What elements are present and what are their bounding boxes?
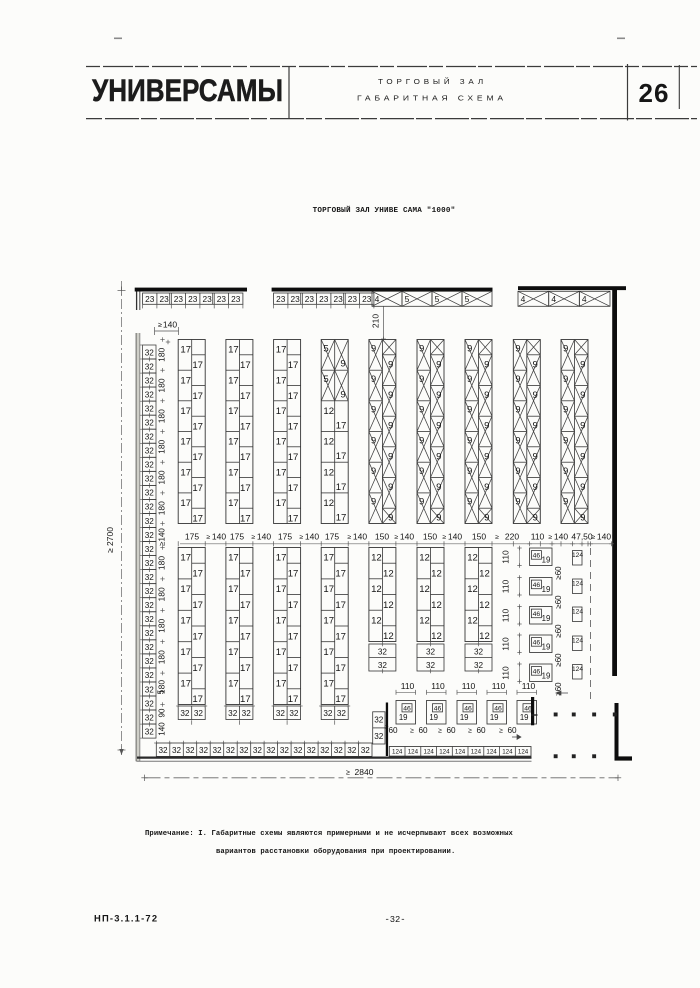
svg-text:17: 17	[228, 467, 239, 478]
svg-text:19: 19	[460, 713, 469, 722]
svg-text:17: 17	[228, 616, 239, 627]
svg-text:46: 46	[533, 582, 541, 589]
svg-text:9: 9	[484, 482, 489, 493]
svg-text:124: 124	[455, 749, 466, 756]
svg-text:9: 9	[484, 390, 489, 401]
svg-text:17: 17	[240, 452, 251, 463]
svg-text:17: 17	[240, 422, 251, 433]
svg-text:9: 9	[340, 389, 345, 400]
svg-text:46: 46	[464, 706, 472, 713]
svg-text:9: 9	[484, 421, 489, 432]
svg-text:32: 32	[253, 746, 263, 755]
svg-text:32: 32	[361, 746, 371, 755]
svg-text:23: 23	[145, 294, 155, 304]
svg-text:32: 32	[185, 746, 195, 755]
svg-text:9: 9	[515, 405, 520, 416]
svg-text:32: 32	[242, 709, 252, 718]
svg-text:17: 17	[276, 647, 287, 658]
svg-text:124: 124	[392, 749, 403, 756]
svg-text:140: 140	[400, 532, 414, 542]
svg-text:12: 12	[371, 584, 382, 595]
svg-text:32: 32	[212, 746, 222, 755]
svg-text:17: 17	[180, 437, 191, 448]
svg-text:9: 9	[515, 343, 520, 354]
svg-text:9: 9	[563, 466, 568, 477]
svg-text:19: 19	[542, 672, 551, 681]
svg-text:17: 17	[335, 569, 346, 580]
svg-text:9: 9	[580, 451, 585, 462]
svg-text:9: 9	[580, 390, 585, 401]
svg-text:17: 17	[240, 569, 251, 580]
svg-text:9: 9	[484, 451, 489, 462]
svg-text:9: 9	[419, 374, 424, 385]
svg-text:32: 32	[276, 709, 286, 718]
svg-text:17: 17	[288, 360, 299, 371]
svg-text:17: 17	[288, 600, 299, 611]
svg-text:175: 175	[185, 532, 199, 542]
svg-text:17: 17	[228, 553, 239, 564]
svg-text:23: 23	[348, 294, 358, 304]
svg-text:9: 9	[532, 482, 537, 493]
svg-text:110: 110	[501, 666, 511, 680]
svg-text:32: 32	[374, 716, 384, 725]
svg-text:17: 17	[323, 616, 334, 627]
svg-text:9: 9	[532, 421, 537, 432]
svg-text:9: 9	[563, 497, 568, 508]
svg-text:90: 90	[158, 708, 167, 717]
svg-text:12: 12	[419, 553, 430, 564]
svg-text:9: 9	[532, 513, 537, 524]
svg-text:17: 17	[288, 663, 299, 674]
svg-text:9: 9	[467, 405, 472, 416]
svg-text:140: 140	[163, 320, 177, 330]
svg-text:110: 110	[501, 637, 511, 651]
svg-text:9: 9	[580, 513, 585, 524]
svg-text:9: 9	[419, 343, 424, 354]
svg-text:60: 60	[418, 726, 428, 735]
svg-text:5: 5	[465, 294, 470, 304]
svg-text:124: 124	[424, 749, 435, 756]
svg-text:32: 32	[280, 746, 290, 755]
svg-text:17: 17	[240, 631, 251, 642]
svg-text:17: 17	[228, 406, 239, 417]
svg-text:32: 32	[158, 746, 168, 755]
svg-text:17: 17	[276, 375, 287, 386]
svg-text:124: 124	[518, 749, 529, 756]
svg-text:17: 17	[180, 498, 191, 509]
svg-text:32: 32	[426, 648, 436, 657]
svg-text:9: 9	[371, 343, 376, 354]
svg-text:17: 17	[192, 663, 203, 674]
svg-text:17: 17	[192, 694, 203, 705]
svg-text:17: 17	[228, 678, 239, 689]
svg-text:17: 17	[276, 553, 287, 564]
svg-text:9: 9	[340, 359, 345, 370]
svg-text:17: 17	[180, 616, 191, 627]
svg-text:32: 32	[145, 475, 155, 484]
svg-text:17: 17	[276, 345, 287, 356]
svg-text:17: 17	[240, 600, 251, 611]
svg-text:46: 46	[434, 706, 442, 713]
svg-text:110: 110	[492, 681, 506, 691]
svg-text:32: 32	[145, 419, 155, 428]
svg-text:9: 9	[467, 374, 472, 385]
svg-text:23: 23	[188, 294, 198, 304]
svg-text:210: 210	[371, 314, 381, 328]
svg-text:32: 32	[228, 709, 238, 718]
svg-text:9: 9	[388, 482, 393, 493]
svg-text:17: 17	[288, 514, 299, 525]
svg-text:32: 32	[320, 746, 330, 755]
svg-text:9: 9	[484, 513, 489, 524]
svg-text:32: 32	[266, 746, 276, 755]
svg-text:32: 32	[474, 648, 484, 657]
svg-text:180: 180	[157, 501, 167, 515]
svg-text:17: 17	[288, 569, 299, 580]
svg-text:9: 9	[436, 513, 441, 524]
svg-text:32: 32	[474, 661, 484, 670]
svg-text:32: 32	[334, 746, 344, 755]
svg-text:19: 19	[399, 713, 408, 722]
svg-text:17: 17	[180, 406, 191, 417]
svg-text:17: 17	[335, 600, 346, 611]
svg-text:110: 110	[501, 550, 511, 564]
svg-text:32: 32	[347, 746, 357, 755]
svg-text:≥ 2700: ≥ 2700	[105, 527, 115, 553]
svg-text:124: 124	[572, 637, 583, 644]
svg-text:32: 32	[145, 643, 155, 652]
svg-text:17: 17	[228, 375, 239, 386]
svg-text:≥140: ≥140	[158, 528, 167, 546]
svg-text:≥: ≥	[346, 770, 350, 777]
svg-text:150: 150	[472, 532, 486, 542]
svg-text:175: 175	[325, 532, 339, 542]
svg-text:17: 17	[288, 631, 299, 642]
svg-text:9: 9	[388, 451, 393, 462]
svg-text:9: 9	[436, 390, 441, 401]
svg-text:220: 220	[505, 532, 519, 542]
svg-text:≥: ≥	[299, 534, 303, 541]
svg-text:9: 9	[371, 466, 376, 477]
svg-text:110: 110	[401, 681, 415, 691]
svg-text:≥60: ≥60	[554, 566, 563, 580]
svg-text:9: 9	[419, 497, 424, 508]
svg-text:17: 17	[288, 452, 299, 463]
svg-text:23: 23	[362, 294, 372, 304]
svg-text:32: 32	[145, 489, 155, 498]
svg-text:4: 4	[375, 294, 380, 304]
svg-text:9: 9	[580, 359, 585, 370]
svg-text:≥: ≥	[206, 534, 210, 541]
svg-text:32: 32	[145, 517, 155, 526]
svg-text:60: 60	[507, 726, 517, 735]
svg-text:110: 110	[431, 681, 445, 691]
svg-text:12: 12	[479, 631, 490, 642]
svg-text:17: 17	[276, 678, 287, 689]
svg-text:140: 140	[158, 722, 167, 736]
svg-text:≥: ≥	[347, 534, 351, 541]
svg-text:32: 32	[145, 376, 155, 385]
svg-text:2840: 2840	[355, 767, 374, 777]
svg-text:124: 124	[502, 749, 513, 756]
svg-text:9: 9	[563, 343, 568, 354]
svg-text:17: 17	[180, 553, 191, 564]
svg-text:-32-: -32-	[384, 915, 405, 925]
svg-text:32: 32	[145, 503, 155, 512]
svg-text:23: 23	[174, 294, 184, 304]
svg-text:9: 9	[436, 482, 441, 493]
svg-text:23: 23	[159, 294, 169, 304]
svg-text:32: 32	[145, 615, 155, 624]
svg-text:110: 110	[522, 681, 536, 691]
svg-text:23: 23	[290, 294, 300, 304]
svg-text:УНИВЕРСАМЫ: УНИВЕРСАМЫ	[92, 72, 283, 108]
svg-text:9: 9	[419, 466, 424, 477]
svg-text:23: 23	[319, 294, 329, 304]
svg-text:≥60: ≥60	[554, 595, 563, 609]
svg-text:5: 5	[323, 343, 328, 354]
svg-text:17: 17	[276, 406, 287, 417]
svg-text:9: 9	[563, 405, 568, 416]
svg-text:4: 4	[521, 294, 526, 304]
svg-text:140: 140	[212, 532, 226, 542]
svg-text:32: 32	[145, 531, 155, 540]
svg-text:9: 9	[388, 421, 393, 432]
svg-text:32: 32	[145, 727, 155, 736]
svg-text:9: 9	[419, 405, 424, 416]
svg-text:17: 17	[228, 647, 239, 658]
svg-text:110: 110	[501, 608, 511, 622]
svg-text:32: 32	[145, 545, 155, 554]
svg-text:32: 32	[145, 671, 155, 680]
svg-text:124: 124	[572, 666, 583, 673]
svg-text:17: 17	[240, 391, 251, 402]
svg-text:9: 9	[436, 451, 441, 462]
svg-text:180: 180	[157, 439, 167, 453]
svg-text:17: 17	[228, 498, 239, 509]
svg-text:≥: ≥	[499, 727, 503, 734]
svg-text:17: 17	[240, 360, 251, 371]
svg-text:17: 17	[335, 631, 346, 642]
svg-text:12: 12	[383, 600, 394, 611]
svg-text:17: 17	[192, 391, 203, 402]
svg-text:32: 32	[145, 405, 155, 414]
svg-text:32: 32	[199, 746, 209, 755]
svg-text:32: 32	[145, 362, 155, 371]
svg-text:17: 17	[240, 663, 251, 674]
svg-text:19: 19	[429, 713, 438, 722]
svg-text:17: 17	[180, 584, 191, 595]
svg-text:5: 5	[405, 294, 410, 304]
svg-text:17: 17	[240, 483, 251, 494]
svg-text:9: 9	[580, 421, 585, 432]
svg-text:12: 12	[467, 615, 478, 626]
svg-text:9: 9	[515, 435, 520, 446]
svg-text:46: 46	[533, 668, 541, 675]
svg-text:12: 12	[467, 553, 478, 564]
svg-text:12: 12	[431, 600, 442, 611]
svg-text:175: 175	[230, 532, 244, 542]
svg-text:23: 23	[231, 294, 241, 304]
svg-text:19: 19	[542, 614, 551, 623]
svg-text:32: 32	[145, 433, 155, 442]
svg-text:140: 140	[554, 532, 568, 542]
svg-text:23: 23	[305, 294, 315, 304]
svg-text:180: 180	[157, 650, 167, 664]
svg-text:17: 17	[288, 422, 299, 433]
svg-text:9: 9	[532, 359, 537, 370]
svg-text:12: 12	[419, 615, 430, 626]
svg-text:≥: ≥	[410, 727, 414, 734]
svg-text:17: 17	[323, 647, 334, 658]
svg-text:32: 32	[145, 629, 155, 638]
svg-text:17: 17	[336, 421, 347, 432]
svg-text:9: 9	[467, 497, 472, 508]
svg-text:32: 32	[374, 732, 384, 741]
svg-text:180: 180	[157, 556, 167, 570]
svg-text:47,50: 47,50	[571, 532, 593, 542]
svg-text:9: 9	[467, 343, 472, 354]
svg-text:124: 124	[408, 749, 419, 756]
svg-text:≥: ≥	[591, 534, 595, 541]
svg-text:12: 12	[467, 584, 478, 595]
svg-text:32: 32	[145, 587, 155, 596]
svg-text:9: 9	[580, 482, 585, 493]
svg-text:12: 12	[323, 467, 334, 478]
svg-text:17: 17	[276, 467, 287, 478]
svg-text:≥: ≥	[442, 534, 446, 541]
svg-text:12: 12	[371, 615, 382, 626]
svg-text:32: 32	[194, 709, 204, 718]
svg-text:9: 9	[484, 359, 489, 370]
svg-text:32: 32	[145, 461, 155, 470]
svg-text:≥: ≥	[158, 322, 162, 329]
svg-text:32: 32	[172, 746, 182, 755]
svg-text:9: 9	[532, 390, 537, 401]
svg-text:32: 32	[145, 685, 155, 694]
svg-text:32: 32	[145, 390, 155, 399]
svg-text:9: 9	[371, 435, 376, 446]
svg-text:17: 17	[323, 553, 334, 564]
svg-text:124: 124	[486, 749, 497, 756]
svg-text:17: 17	[323, 678, 334, 689]
svg-text:60: 60	[476, 726, 486, 735]
svg-text:32: 32	[337, 709, 347, 718]
svg-text:17: 17	[192, 452, 203, 463]
svg-text:23: 23	[217, 294, 227, 304]
svg-text:180: 180	[157, 470, 167, 484]
svg-text:46: 46	[533, 639, 541, 646]
svg-text:46: 46	[403, 706, 411, 713]
svg-text:17: 17	[192, 514, 203, 525]
svg-text:9: 9	[388, 513, 393, 524]
svg-text:175: 175	[278, 532, 292, 542]
svg-text:180: 180	[157, 378, 167, 392]
svg-text:17: 17	[288, 391, 299, 402]
svg-text:17: 17	[180, 375, 191, 386]
svg-text:≥: ≥	[468, 727, 472, 734]
svg-text:вариантов расстановки оборудов: вариантов расстановки оборудования при п…	[216, 847, 455, 856]
svg-text:5: 5	[323, 374, 328, 385]
svg-text:≥: ≥	[251, 534, 255, 541]
svg-text:12: 12	[383, 631, 394, 642]
svg-text:32: 32	[426, 661, 436, 670]
svg-text:32: 32	[145, 657, 155, 666]
svg-text:17: 17	[336, 482, 347, 493]
svg-text:32: 32	[307, 746, 317, 755]
svg-text:124: 124	[572, 552, 583, 559]
svg-text:46: 46	[494, 706, 502, 713]
svg-text:180: 180	[157, 347, 167, 361]
svg-text:180: 180	[157, 618, 167, 632]
svg-text:17: 17	[180, 345, 191, 356]
svg-text:32: 32	[226, 746, 236, 755]
svg-text:≥: ≥	[394, 534, 398, 541]
svg-text:5: 5	[435, 294, 440, 304]
svg-text:17: 17	[335, 663, 346, 674]
svg-text:≥: ≥	[548, 534, 552, 541]
svg-text:32: 32	[323, 709, 333, 718]
svg-text:32: 32	[145, 447, 155, 456]
svg-text:150: 150	[375, 532, 389, 542]
svg-text:9: 9	[388, 359, 393, 370]
svg-text:9: 9	[563, 374, 568, 385]
svg-text:17: 17	[288, 694, 299, 705]
svg-text:124: 124	[439, 749, 450, 756]
svg-text:23: 23	[333, 294, 343, 304]
svg-text:12: 12	[323, 498, 334, 509]
svg-text:32: 32	[293, 746, 303, 755]
svg-text:17: 17	[192, 631, 203, 642]
svg-text:19: 19	[520, 713, 529, 722]
svg-text:9: 9	[388, 390, 393, 401]
svg-text:110: 110	[462, 681, 476, 691]
svg-text:9: 9	[515, 374, 520, 385]
svg-text:9: 9	[532, 451, 537, 462]
svg-text:4: 4	[551, 294, 556, 304]
svg-text:12: 12	[419, 584, 430, 595]
svg-text:17: 17	[276, 498, 287, 509]
svg-text:32: 32	[145, 573, 155, 582]
svg-text:17: 17	[180, 647, 191, 658]
svg-text:26: 26	[639, 78, 670, 108]
svg-text:17: 17	[336, 513, 347, 524]
svg-text:Примечание: I. Габаритные схем: Примечание: I. Габаритные схемы являются…	[145, 829, 514, 838]
svg-text:12: 12	[371, 553, 382, 564]
svg-text:12: 12	[479, 600, 490, 611]
svg-text:110: 110	[501, 579, 511, 593]
svg-text:19: 19	[542, 585, 551, 594]
svg-text:140: 140	[597, 532, 611, 542]
svg-text:19: 19	[542, 556, 551, 565]
svg-text:9: 9	[436, 359, 441, 370]
svg-text:19: 19	[490, 713, 499, 722]
svg-text:ГАБАРИТНАЯ СХЕМА: ГАБАРИТНАЯ СХЕМА	[357, 94, 507, 103]
svg-text:ТОРГОВЫЙ ЗАЛ: ТОРГОВЫЙ ЗАЛ	[378, 77, 487, 86]
svg-text:124: 124	[572, 580, 583, 587]
svg-text:32: 32	[145, 601, 155, 610]
svg-text:17: 17	[240, 694, 251, 705]
svg-text:60: 60	[446, 726, 456, 735]
svg-text:12: 12	[383, 569, 394, 580]
svg-text:140: 140	[448, 532, 462, 542]
svg-text:≥60: ≥60	[554, 653, 563, 667]
svg-text:17: 17	[180, 678, 191, 689]
svg-text:17: 17	[192, 569, 203, 580]
svg-text:32: 32	[239, 746, 249, 755]
svg-text:17: 17	[335, 694, 346, 705]
svg-text:46: 46	[524, 706, 532, 713]
